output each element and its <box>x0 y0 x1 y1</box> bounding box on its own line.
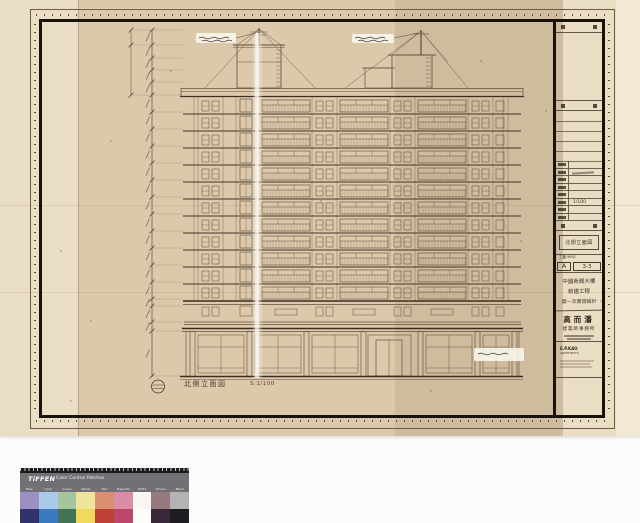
color-patch-cyan-row2 <box>39 509 58 523</box>
field-label-smudge <box>558 208 566 211</box>
titleblock-field-row <box>556 184 602 192</box>
project-line: 中國新聞大樓 <box>556 277 602 286</box>
field-label-cell <box>556 214 569 221</box>
address-smudge <box>560 366 592 368</box>
handwritten-smudge <box>593 224 597 228</box>
field-label-smudge <box>558 163 566 166</box>
titleblock-header-row <box>556 221 602 231</box>
tiffen-logo: TiFFEN <box>28 475 55 483</box>
field-label-cell <box>556 184 569 191</box>
card-title: Color Control Patches <box>56 476 104 481</box>
field-label-cell <box>556 206 569 213</box>
titleblock-header-row <box>556 22 602 33</box>
color-patch-blue-row1 <box>20 492 39 509</box>
address-smudge <box>567 338 591 340</box>
sheet-number-box: A 3-3 <box>556 261 602 273</box>
titleblock-rule <box>556 141 602 142</box>
field-label-smudge <box>558 193 566 196</box>
field-label-smudge <box>558 216 566 219</box>
address-smudge <box>560 363 590 365</box>
handwritten-smudge <box>561 25 565 29</box>
color-patch-green-row2 <box>58 509 77 523</box>
color-patch-black-row2 <box>170 509 189 523</box>
project-line: 新建工程 <box>556 287 602 296</box>
titleblock-rule <box>556 121 602 122</box>
titleblock-empty-box <box>556 378 602 415</box>
field-label-smudge <box>558 186 566 189</box>
field-label-smudge <box>558 201 566 204</box>
field-label-smudge <box>558 171 566 174</box>
color-patch-white-row2 <box>133 509 152 523</box>
color-patch-black-row1 <box>170 492 189 509</box>
titleblock-empty-box <box>556 33 602 101</box>
patch-row-saturated <box>20 509 189 523</box>
handwritten-annotations <box>0 0 640 523</box>
titleblock-field-row <box>556 169 602 177</box>
titleblock-rule <box>556 131 602 132</box>
architect-latin-block: E.P.KAO ARCHITECTS <box>556 342 602 378</box>
color-patch-magenta-row2 <box>114 509 133 523</box>
address-smudge <box>560 360 594 362</box>
color-patch-red-row1 <box>95 492 114 509</box>
patch-row-pastel <box>20 492 189 509</box>
color-patch-yellow-row2 <box>76 509 95 523</box>
titleblock-header-row <box>556 101 602 111</box>
revision-letter: A <box>557 262 571 271</box>
handwritten-smudge <box>561 104 565 108</box>
handwritten-smudge <box>593 104 597 108</box>
color-patch-3color-row2 <box>151 509 170 523</box>
architect-block: 高而潘 建築師事務所 <box>556 311 602 342</box>
handwritten-smudge <box>593 25 597 29</box>
field-label-cell <box>556 161 569 168</box>
color-patch-magenta-row1 <box>114 492 133 509</box>
color-patch-3color-row1 <box>151 492 170 509</box>
titleblock-field-row: 1/100 <box>556 199 602 207</box>
titleblock-field-row <box>556 161 602 169</box>
titleblock-field-row <box>556 191 602 199</box>
ruler-ticks <box>20 468 189 471</box>
handwritten-smudge <box>561 224 565 228</box>
project-line: 第一次實施設計 <box>556 298 602 306</box>
field-label-cell <box>556 176 569 183</box>
card-header: TiFFEN Color Control Patches <box>20 473 189 487</box>
field-label-cell <box>556 169 569 176</box>
titleblock-rule <box>556 151 602 152</box>
scale-entry: 1/100 <box>573 200 586 205</box>
color-patch-blue-row2 <box>20 509 39 523</box>
color-patch-yellow-row1 <box>76 492 95 509</box>
drawing-title-box: 北側立面図 <box>556 231 602 255</box>
titleblock-field-row <box>556 214 602 222</box>
sheet-number: 3-3 <box>573 262 601 271</box>
title-block: 1/100 北側立面図 工番 9601 A 3-3 中國新聞大樓 新建工程 第一… <box>556 22 602 415</box>
titleblock-field-row <box>556 206 602 214</box>
drawing-label: 北側立面図 <box>184 379 227 389</box>
architect-office: 建築師事務所 <box>556 326 602 332</box>
project-name-block: 中國新聞大樓 新建工程 第一次實施設計 <box>556 273 603 312</box>
handwritten-entry <box>572 171 594 174</box>
address-smudge <box>564 335 594 337</box>
drawing-title-text: 北側立面図 <box>559 235 599 250</box>
field-label-cell <box>556 191 569 198</box>
color-patch-white-row1 <box>133 492 152 509</box>
field-label-cell <box>556 199 569 206</box>
titleblock-field-row <box>556 176 602 184</box>
scanned-drawing: 北側立面図 S:1/100 1/100 北側立面図 工番 9601 A 3-3 <box>0 0 640 523</box>
field-label-smudge <box>558 178 566 181</box>
color-patch-red-row2 <box>95 509 114 523</box>
drawing-scale-note: S:1/100 <box>250 381 275 387</box>
color-patch-green-row1 <box>58 492 77 509</box>
color-card: TiFFEN Color Control Patches BlueCyanGre… <box>20 468 189 523</box>
architect-latin-title: ARCHITECTS <box>560 351 602 355</box>
architect-name: 高而潘 <box>556 314 602 325</box>
color-patch-cyan-row1 <box>39 492 58 509</box>
